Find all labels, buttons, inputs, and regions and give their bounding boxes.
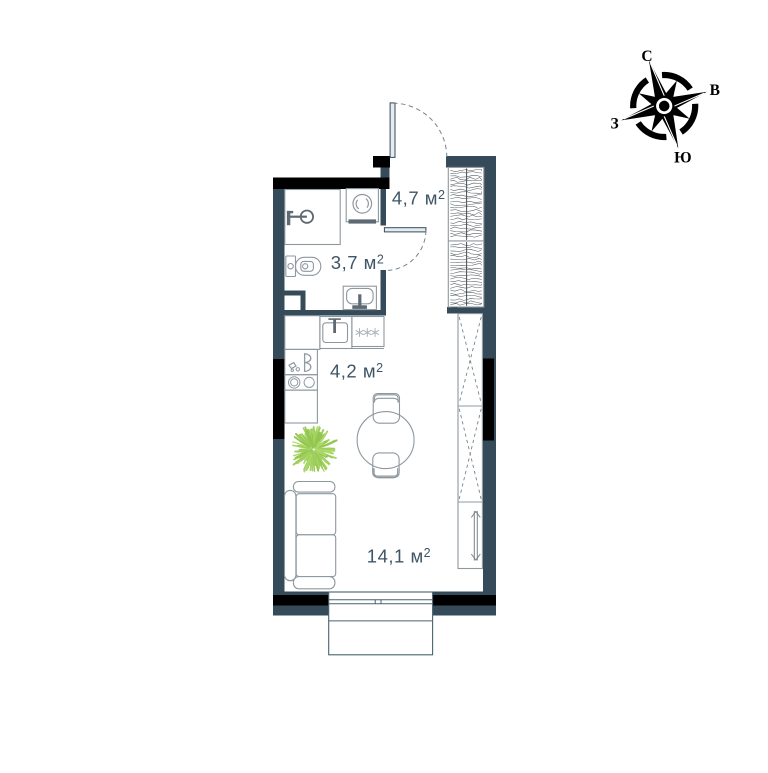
svg-text:4,2 м2: 4,2 м2 (330, 360, 384, 381)
svg-text:4,7 м2: 4,7 м2 (392, 188, 446, 209)
svg-text:В: В (710, 82, 720, 99)
svg-text:14,1 м2: 14,1 м2 (367, 545, 431, 566)
svg-text:Ю: Ю (674, 150, 691, 167)
svg-text:С: С (641, 48, 652, 65)
svg-text:3,7 м2: 3,7 м2 (331, 252, 385, 273)
svg-text:З: З (611, 116, 619, 133)
